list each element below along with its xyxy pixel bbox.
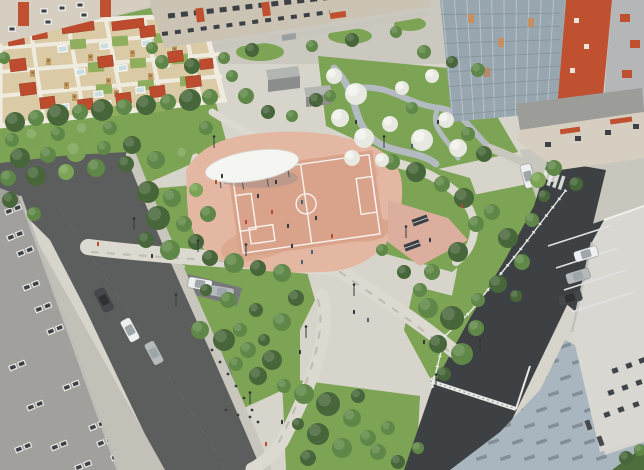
person: [301, 200, 303, 205]
tree: [345, 33, 359, 47]
tree: [184, 58, 200, 74]
tree: [514, 254, 530, 270]
bollard: [225, 409, 228, 412]
tree: [176, 216, 192, 232]
courtyard-park-render: [0, 0, 644, 470]
tree: [66, 142, 86, 162]
tree: [72, 104, 88, 120]
tree: [525, 213, 539, 227]
bollard: [251, 409, 254, 412]
tree: [245, 43, 259, 57]
lit-window: [468, 14, 474, 23]
person: [315, 216, 317, 221]
person: [257, 194, 259, 199]
tree: [412, 442, 424, 454]
person: [311, 250, 313, 255]
tree: [292, 418, 304, 430]
play-structure: [46, 58, 51, 65]
person: [331, 234, 333, 239]
tree: [294, 384, 314, 404]
tree: [476, 146, 492, 162]
tree: [273, 313, 291, 331]
tree: [468, 216, 484, 232]
blossom-tree: [411, 129, 433, 151]
tree: [498, 228, 518, 248]
person: [265, 442, 267, 447]
facade-accent: [18, 2, 29, 26]
tree: [351, 389, 365, 403]
person: [411, 144, 413, 149]
annex-window: [575, 136, 581, 141]
tree: [397, 265, 411, 279]
tree: [47, 104, 69, 126]
red-shade-canopy: [199, 58, 213, 70]
tree: [229, 357, 243, 371]
tree: [471, 63, 485, 77]
tree: [484, 204, 500, 220]
tree: [123, 136, 141, 154]
tree: [273, 264, 291, 282]
bollard: [237, 414, 240, 417]
blossom-tree: [354, 128, 374, 148]
tree: [233, 323, 247, 337]
tree: [91, 99, 113, 121]
annex-window: [605, 130, 611, 135]
tree: [0, 170, 16, 186]
facade-accent: [620, 14, 630, 22]
tree: [146, 206, 170, 230]
tree: [417, 45, 431, 59]
sandbox: [76, 69, 85, 76]
tree: [261, 105, 275, 119]
sandbox: [118, 65, 127, 72]
tree: [116, 99, 132, 115]
play-structure: [148, 73, 153, 80]
tree: [138, 232, 154, 248]
tree: [324, 90, 336, 102]
person: [355, 120, 357, 125]
tree: [238, 88, 254, 104]
red-shade-canopy: [97, 55, 113, 68]
person: [429, 238, 431, 243]
tree: [199, 121, 213, 135]
tree: [28, 110, 44, 126]
tree: [489, 275, 507, 293]
tree: [250, 260, 266, 276]
blossom-tree: [395, 81, 409, 95]
bollard: [257, 421, 260, 424]
bollard: [235, 385, 238, 388]
tree: [468, 320, 484, 336]
tree: [160, 240, 180, 260]
tree: [87, 159, 105, 177]
person: [423, 340, 425, 345]
play-structure: [88, 54, 93, 61]
tree: [224, 253, 244, 273]
tree: [440, 306, 464, 330]
blossom-tree: [375, 153, 389, 167]
tree: [240, 342, 256, 358]
tree: [381, 421, 395, 435]
blossom-tree: [331, 109, 349, 127]
facade-accent: [100, 0, 111, 17]
person: [245, 220, 247, 225]
tree: [118, 156, 134, 172]
tree: [146, 42, 158, 54]
tree: [391, 455, 405, 469]
tree: [376, 244, 388, 256]
tree: [189, 183, 203, 197]
tree: [418, 298, 438, 318]
tree: [40, 147, 56, 163]
tree: [306, 40, 318, 52]
tree: [434, 176, 450, 192]
tree: [413, 283, 427, 297]
tree: [448, 242, 468, 262]
tree: [288, 290, 304, 306]
person: [97, 242, 99, 247]
person: [287, 224, 289, 229]
tree: [179, 89, 201, 111]
lit-window: [498, 38, 504, 47]
facade-accent: [622, 70, 632, 78]
lit-window: [528, 18, 534, 27]
annex-window: [545, 142, 551, 147]
tree: [103, 121, 117, 135]
person: [299, 350, 301, 355]
tree: [200, 284, 212, 296]
tree: [27, 207, 41, 221]
annex-window: [633, 124, 639, 129]
tree: [191, 321, 209, 339]
tree: [136, 95, 156, 115]
tree: [188, 234, 204, 250]
person: [275, 180, 277, 185]
tree: [316, 392, 340, 416]
tree: [220, 292, 236, 308]
tree: [360, 430, 376, 446]
person: [221, 174, 223, 179]
red-shade-canopy: [167, 50, 183, 63]
tree: [202, 250, 218, 266]
person: [301, 260, 303, 265]
blossom-tree: [326, 68, 342, 84]
tree: [406, 162, 426, 182]
bollard: [243, 397, 246, 400]
sandbox: [136, 87, 145, 94]
blossom-tree: [382, 116, 398, 132]
tree: [569, 177, 583, 191]
tree: [10, 148, 30, 168]
person: [151, 254, 153, 259]
tree: [2, 192, 18, 208]
tree: [155, 55, 169, 69]
tree: [25, 128, 43, 146]
person: [215, 180, 217, 185]
tree: [390, 26, 402, 38]
tree: [437, 367, 451, 381]
tree: [332, 438, 352, 458]
tree: [26, 166, 46, 186]
bollard: [227, 373, 230, 376]
blossom-tree: [425, 69, 439, 83]
blossom-tree: [344, 150, 360, 166]
tree: [343, 409, 361, 427]
play-structure: [64, 82, 69, 89]
red-shade-canopy: [19, 82, 36, 96]
person: [367, 318, 369, 323]
person: [461, 204, 463, 209]
tree: [454, 188, 474, 208]
bollard: [249, 416, 252, 419]
bollard: [211, 349, 214, 352]
tree: [300, 450, 316, 466]
tree: [5, 112, 25, 132]
tree: [163, 189, 181, 207]
person: [271, 210, 273, 215]
person: [437, 120, 439, 125]
tree: [446, 56, 458, 68]
tree: [176, 147, 192, 163]
bollard: [219, 361, 222, 364]
sandbox: [94, 91, 103, 98]
tree: [200, 206, 216, 222]
tree: [538, 190, 550, 202]
tree: [202, 89, 218, 105]
panel-window: [574, 18, 579, 23]
blossom-tree: [449, 139, 467, 157]
tree: [406, 102, 418, 114]
blossom-tree: [345, 83, 367, 105]
red-shade-canopy: [185, 75, 201, 88]
tree: [286, 110, 298, 122]
tree: [249, 303, 263, 317]
tree: [309, 93, 323, 107]
sports-court-platform: [186, 132, 402, 273]
tree: [218, 52, 230, 64]
tree: [213, 329, 235, 351]
tree: [307, 423, 329, 445]
tree: [137, 181, 159, 203]
panel-window: [570, 68, 575, 73]
tree: [160, 94, 176, 110]
tree: [262, 350, 282, 370]
tree: [546, 160, 562, 176]
tree: [147, 151, 165, 169]
tree: [424, 264, 440, 280]
lawn-cell: [70, 38, 87, 49]
red-shade-canopy: [9, 58, 26, 72]
sandbox: [58, 46, 67, 53]
tree: [5, 133, 19, 147]
tree: [277, 379, 291, 393]
tree: [530, 172, 546, 188]
person: [281, 420, 283, 425]
lawn-cell: [130, 57, 147, 68]
tree: [258, 334, 270, 346]
person: [291, 244, 293, 249]
blossom-tree: [438, 112, 454, 128]
play-structure: [106, 78, 111, 85]
tree: [97, 141, 111, 155]
tree: [75, 122, 93, 140]
tree: [51, 127, 65, 141]
play-structure: [30, 70, 35, 77]
tree: [429, 335, 447, 353]
panel-window: [584, 44, 589, 49]
play-structure: [72, 94, 77, 101]
tree: [226, 70, 238, 82]
tree: [370, 444, 386, 460]
facade-accent: [630, 40, 640, 48]
lawn-cell: [112, 35, 129, 46]
tree: [510, 290, 522, 302]
play-structure: [130, 50, 135, 57]
tree: [619, 451, 633, 465]
tree: [471, 293, 485, 307]
person: [353, 310, 355, 315]
sandbox: [100, 43, 109, 50]
tree: [249, 367, 267, 385]
rendered-aerial-view: [0, 0, 644, 470]
tree: [58, 164, 74, 180]
tree: [461, 127, 475, 141]
tree: [451, 343, 473, 365]
